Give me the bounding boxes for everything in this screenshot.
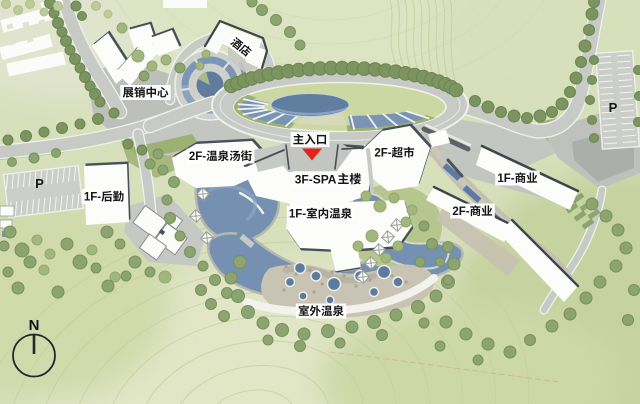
- svg-text:2F-: 2F-: [452, 206, 469, 218]
- svg-text:2F-: 2F-: [374, 148, 391, 160]
- svg-text:1F-: 1F-: [289, 209, 306, 221]
- svg-text:P: P: [35, 176, 44, 191]
- svg-text:2F-: 2F-: [189, 151, 206, 163]
- svg-text:N: N: [29, 317, 40, 334]
- svg-text:1F-: 1F-: [84, 192, 101, 204]
- svg-text:1F-: 1F-: [497, 173, 514, 185]
- svg-text:3F-SPA: 3F-SPA: [295, 172, 337, 186]
- svg-text:P: P: [609, 100, 618, 115]
